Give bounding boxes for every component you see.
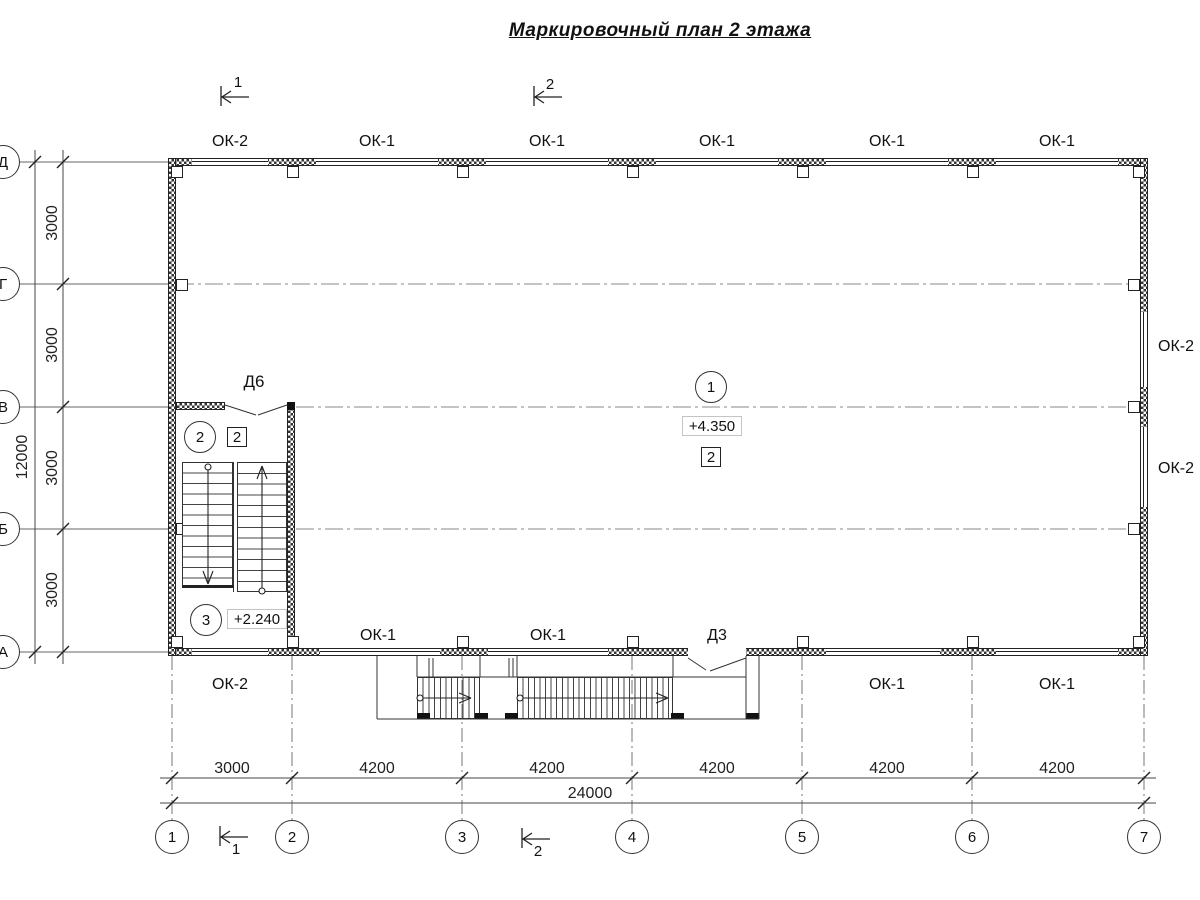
exterior-stair-arrow-1: [417, 693, 471, 703]
section-number: 1: [224, 841, 248, 858]
window-label: ОК-1: [1022, 676, 1092, 694]
dimension-value: 4200: [677, 760, 757, 777]
room-number-circle: 1: [695, 371, 727, 403]
door-d3-swing: [688, 658, 746, 671]
axis-circle-number: 4: [615, 820, 649, 854]
window-label: ОК-1: [852, 133, 922, 151]
elevation-mark: +4.350: [682, 416, 742, 436]
room-number-circle: 2: [184, 421, 216, 453]
window-label: ОК-1: [682, 133, 752, 151]
dimension-value: 3000: [44, 315, 64, 375]
window-label: ОК-2: [195, 676, 265, 694]
window-label: ОК-2: [195, 133, 265, 151]
bottom-axis-extension-lines: [172, 656, 1144, 820]
window-label: ОК-1: [513, 627, 583, 645]
window-label: ОК-1: [1022, 133, 1092, 151]
stair-arrow-up: [257, 466, 267, 594]
axis-circle-number: 5: [785, 820, 819, 854]
section-number: 2: [538, 76, 562, 93]
dimension-value: 3000: [44, 438, 64, 498]
exterior-stair-outline: [377, 656, 759, 719]
dimension-value: 4200: [337, 760, 417, 777]
window-label: ОК-1: [852, 676, 922, 694]
dimension-value: 4200: [847, 760, 927, 777]
axis-circle-number: 2: [275, 820, 309, 854]
left-extension-lines: [20, 162, 168, 652]
dimension-value: 3000: [192, 760, 272, 777]
room-number-circle: 3: [190, 604, 222, 636]
window-label: ОК-1: [342, 133, 412, 151]
section-number: 2: [526, 843, 550, 860]
door-d6-swing: [225, 405, 287, 415]
door-label: Д6: [226, 373, 282, 391]
dimension-total: 24000: [550, 785, 630, 802]
door-label: Д3: [682, 627, 752, 645]
floor-plan-sheet: Маркировочный план 2 этажа 1 2 1 2 ОК-2 …: [0, 0, 1200, 900]
stair-arrow-down: [203, 464, 213, 584]
elevation-mark: +2.240: [227, 609, 287, 629]
bottom-dimension-lines: [160, 778, 1156, 803]
dimension-total: 12000: [14, 427, 34, 487]
dimension-value: 3000: [44, 193, 64, 253]
dimension-value: 4200: [1017, 760, 1097, 777]
dimension-ticks: [29, 156, 1150, 809]
exterior-stair-arrow-2: [517, 693, 668, 703]
finish-mark: 2: [227, 427, 247, 447]
axis-circle-number: 3: [445, 820, 479, 854]
window-label: ОК-1: [512, 133, 582, 151]
axis-circle-number: 6: [955, 820, 989, 854]
window-label: ОК-2: [1158, 338, 1200, 356]
dimension-value: 3000: [44, 560, 64, 620]
finish-mark: 2: [701, 447, 721, 467]
section-number: 1: [226, 74, 250, 91]
axis-circle-number: 1: [155, 820, 189, 854]
drawing-title: Маркировочный план 2 этажа: [340, 20, 980, 48]
window-label: ОК-1: [343, 627, 413, 645]
dimension-value: 4200: [507, 760, 587, 777]
axis-circle-number: 7: [1127, 820, 1161, 854]
window-label: ОК-2: [1158, 460, 1200, 478]
